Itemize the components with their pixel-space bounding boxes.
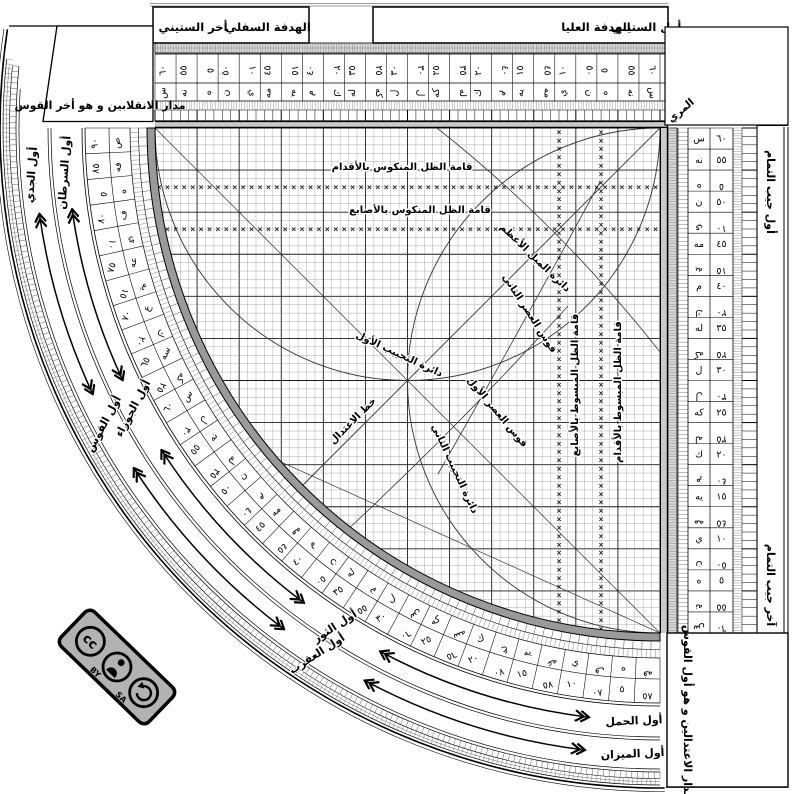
svg-text:٤٠: ٤٠ [499,65,510,75]
svg-text:٥٠: ٥٠ [219,482,234,497]
svg-text:×: × [556,221,562,229]
svg-text:×: × [417,225,423,233]
svg-text:×: × [556,364,562,372]
svg-text:×: × [556,423,562,431]
svg-text:ك: ك [475,632,486,645]
svg-text:×: × [291,183,297,191]
svg-text:٥٠: ٥٠ [313,573,328,588]
svg-text:×: × [282,225,288,233]
svg-text:×: × [598,297,604,305]
svg-text:×: × [392,183,398,191]
svg-text:×: × [198,225,204,233]
svg-text:×: × [556,356,562,364]
svg-text:×: × [249,183,255,191]
svg-text:ي: ي [695,534,702,545]
svg-text:م: م [257,492,269,504]
svg-text:×: × [223,225,229,233]
svg-text:×: × [598,229,604,237]
svg-text:×: × [598,305,604,313]
svg-text:×: × [598,128,604,136]
svg-text:×: × [366,225,372,233]
svg-text:مه: مه [694,518,704,529]
svg-text:×: × [417,183,423,191]
svg-text:له: له [695,323,703,334]
svg-text:×: × [598,617,604,625]
svg-text:×: × [598,600,604,608]
svg-text:×: × [265,183,271,191]
svg-text:٦٠: ٦٠ [399,627,413,641]
svg-text:عه: عه [127,256,140,269]
top-sine-ruler: ٦٠س٥٥نه٥ه٥٠ن١٠ي٤٥مه١٥يه٤٠م٢٠ك٣٥له٢٥كه٣٠ل… [155,43,668,128]
svg-text:٢٥: ٢٥ [716,349,726,360]
svg-text:٨٠: ٨٠ [96,213,108,225]
svg-text:×: × [556,591,562,599]
svg-text:٣٥: ٣٥ [457,65,468,75]
svg-text:×: × [535,183,541,191]
svg-text:١٥: ١٥ [117,287,130,300]
svg-text:×: × [350,183,356,191]
svg-text:×: × [442,183,448,191]
svg-text:١٥: ١٥ [515,65,526,75]
svg-text:×: × [598,263,604,271]
svg-text:×: × [274,183,280,191]
svg-text:٥٠: ٥٠ [221,65,232,75]
svg-text:م: م [306,538,318,550]
svg-text:×: × [598,171,604,179]
svg-text:×: × [409,183,415,191]
svg-text:×: × [598,280,604,288]
svg-text:ي: ي [557,89,568,96]
svg-text:×: × [316,225,322,233]
svg-text:٧٥: ٧٥ [105,261,118,274]
svg-text:×: × [556,524,562,532]
svg-text:له: له [695,433,703,444]
svg-text:×: × [556,532,562,540]
svg-text:×: × [556,246,562,254]
svg-text:٦٠: ٦٠ [647,65,658,75]
svg-text:عه: عه [546,656,559,669]
svg-text:×: × [577,183,583,191]
svg-text:×: × [173,183,179,191]
svg-text:×: × [598,398,604,406]
svg-text:٢٠: ٢٠ [716,449,726,460]
svg-text:×: × [556,448,562,456]
svg-text:٤٠: ٤٠ [305,65,316,75]
svg-text:مه: مه [269,504,284,519]
svg-text:×: × [333,183,339,191]
svg-text:١٠: ١٠ [716,223,726,234]
svg-text:×: × [598,532,604,540]
svg-text:×: × [598,246,604,254]
svg-text:×: × [526,183,532,191]
sight-vanes: أخر الستيني الهدفة السفلي الهدفة العليا … [150,4,681,44]
svg-text:ع: ع [141,304,153,313]
svg-text:٢٠: ٢٠ [331,65,342,75]
svg-text:ي: ي [127,235,139,244]
svg-text:×: × [568,183,574,191]
svg-text:٥٠: ٥٠ [716,560,726,571]
svg-text:٤٥: ٤٥ [275,541,290,556]
svg-text:٣٥: ٣٥ [207,466,222,481]
svg-text:٣٥: ٣٥ [331,584,346,599]
shadow-extended-digits-label: قامة الظل المبسوط بالأصابع [568,314,581,457]
svg-text:كه: كه [173,371,187,385]
svg-text:ن: ن [221,89,232,96]
svg-text:×: × [257,225,263,233]
svg-text:×: × [585,183,591,191]
svg-text:×: × [543,225,549,233]
svg-text:×: × [425,225,431,233]
svg-text:١٠: ١٠ [247,65,258,75]
svg-text:٥٥: ٥٥ [188,443,203,458]
svg-text:س: س [158,87,169,99]
svg-text:×: × [653,183,659,191]
svg-text:٣٠: ٣٠ [374,611,388,626]
svg-text:×: × [556,322,562,330]
shadow-reversed-digits-label: قامة الظل المنكوس بالأصابع [349,203,491,216]
svg-text:×: × [375,225,381,233]
svg-text:ن: ن [328,556,340,569]
svg-text:×: × [434,183,440,191]
solstice-orbit-label: مدار الانقلابين و هو أخر القوس [14,98,185,112]
svg-text:×: × [207,183,213,191]
svg-text:٤٠: ٤٠ [239,505,254,520]
svg-text:×: × [467,183,473,191]
svg-text:×: × [282,183,288,191]
svg-text:×: × [451,225,457,233]
svg-text:×: × [598,482,604,490]
svg-text:×: × [556,373,562,381]
svg-text:×: × [467,225,473,233]
svg-text:كه: كه [694,349,704,360]
svg-text:×: × [598,364,604,372]
svg-text:×: × [274,225,280,233]
svg-text:٦٥: ٦٥ [445,648,459,662]
svg-text:ك: ك [695,307,703,318]
svg-text:س: س [408,607,423,622]
svg-text:×: × [598,204,604,212]
svg-text:×: × [556,145,562,153]
svg-text:×: × [484,183,490,191]
svg-text:٤٠: ٤٠ [290,553,305,568]
svg-text:×: × [556,137,562,145]
svg-text:×: × [556,128,562,136]
svg-text:×: × [598,221,604,229]
svg-text:×: × [598,288,604,296]
svg-text:نه: نه [179,89,190,97]
svg-text:×: × [556,238,562,246]
svg-text:٢٥: ٢٥ [373,65,384,75]
svg-text:×: × [598,179,604,187]
svg-text:٨٥: ٨٥ [90,163,102,174]
svg-text:×: × [556,465,562,473]
svg-text:م: م [499,90,510,96]
svg-text:×: × [556,431,562,439]
svg-text:×: × [333,225,339,233]
right-cosine-column: س٦٠نه٥٥ه٥ن٥٠ي١٠مه٤٥يه١٥م٤٠ك٢٠له٣٥كه٢٥ل٣٠… [661,125,758,634]
svg-text:×: × [383,225,389,233]
svg-text:×: × [556,583,562,591]
svg-text:×: × [556,297,562,305]
svg-text:٧٠: ٧٠ [492,665,505,678]
svg-text:×: × [493,183,499,191]
svg-text:١٥: ١٥ [716,265,726,276]
svg-text:×: × [636,225,642,233]
svg-text:×: × [598,440,604,448]
svg-text:ي: ي [247,89,258,96]
svg-text:×: × [598,339,604,347]
svg-text:×: × [400,225,406,233]
svg-text:×: × [598,541,604,549]
svg-text:٦٥: ٦٥ [139,356,153,370]
svg-text:×: × [198,183,204,191]
svg-text:يه: يه [289,89,300,97]
svg-text:٤٥: ٤٥ [253,519,268,534]
svg-text:×: × [341,225,347,233]
svg-text:×: × [627,183,633,191]
svg-text:×: × [556,314,562,322]
svg-text:×: × [476,183,482,191]
svg-text:٥: ٥ [719,576,724,587]
svg-text:×: × [510,183,516,191]
svg-text:×: × [598,423,604,431]
svg-text:٣٥: ٣٥ [716,433,726,444]
svg-text:×: × [598,474,604,482]
svg-text:×: × [240,225,246,233]
svg-text:×: × [556,457,562,465]
svg-text:×: × [585,225,591,233]
svg-text:×: × [308,183,314,191]
svg-text:×: × [556,558,562,566]
svg-text:ه: ه [599,90,610,95]
svg-text:نه: نه [625,89,636,97]
svg-text:×: × [556,229,562,237]
svg-text:×: × [598,196,604,204]
svg-text:ل: ل [198,414,211,426]
svg-text:نه: نه [368,584,380,597]
svg-text:×: × [611,225,617,233]
svg-text:×: × [598,499,604,507]
svg-text:×: × [556,566,562,574]
svg-text:٨٥: ٨٥ [642,690,652,701]
svg-text:×: × [568,225,574,233]
svg-text:×: × [556,549,562,557]
svg-text:كه: كه [431,88,442,98]
svg-text:٥٥: ٥٥ [716,155,726,166]
svg-text:×: × [598,373,604,381]
svg-text:×: × [392,225,398,233]
svg-text:٢٥: ٢٥ [419,634,433,648]
svg-text:٩٠: ٩٠ [89,138,100,148]
svg-text:×: × [644,225,650,233]
svg-text:×: × [556,263,562,271]
svg-text:×: × [518,225,524,233]
svg-text:×: × [598,145,604,153]
svg-text:ه: ه [205,91,216,96]
svg-text:نه: نه [695,155,703,166]
svg-text:×: × [543,183,549,191]
svg-text:×: × [598,558,604,566]
svg-text:×: × [383,183,389,191]
svg-text:ن: ن [583,90,594,97]
svg-text:٤٥: ٤٥ [716,518,726,529]
svg-text:٢٠: ٢٠ [473,65,484,75]
svg-text:×: × [598,238,604,246]
svg-text:٣٠: ٣٠ [716,365,726,376]
svg-text:١٠: ١٠ [557,65,568,75]
svg-text:×: × [556,213,562,221]
svg-text:يه: يه [515,89,526,97]
svg-text:ك: ك [154,327,167,338]
svg-text:×: × [459,225,465,233]
svg-text:ي: ي [695,223,702,234]
svg-text:ع: ع [501,645,510,657]
svg-text:×: × [215,183,221,191]
svg-text:×: × [556,406,562,414]
svg-text:٣٠: ٣٠ [178,424,193,439]
svg-text:فه: فه [112,162,124,172]
svg-text:مه: مه [263,88,274,98]
sine-quadrant-page: ××××××××××××××××××××××××××××××××××××××××… [0,0,794,794]
svg-text:×: × [459,183,465,191]
svg-text:×: × [316,183,322,191]
svg-text:٥: ٥ [619,684,625,695]
svg-text:×: × [442,225,448,233]
svg-text:٤٥: ٤٥ [263,65,274,75]
svg-text:×: × [556,499,562,507]
svg-text:×: × [598,389,604,397]
svg-text:سه: سه [158,345,173,361]
svg-text:ل: ل [696,365,703,376]
svg-text:×: × [598,137,604,145]
svg-text:×: × [556,600,562,608]
svg-text:كه: كه [373,88,384,98]
cosine-end-label: آخر جيب التمام [764,544,778,626]
zodiac-label-inner-0: أول الحمل [605,712,663,728]
svg-text:×: × [653,225,659,233]
svg-text:×: × [636,183,642,191]
svg-text:يه: يه [695,265,703,276]
svg-text:×: × [598,406,604,414]
svg-text:س: س [693,134,705,145]
svg-text:×: × [598,465,604,473]
svg-text:١٠: ١٠ [716,534,726,545]
svg-text:×: × [434,225,440,233]
svg-text:×: × [366,183,372,191]
svg-text:فه: فه [643,668,653,679]
svg-text:×: × [232,225,238,233]
svg-text:×: × [598,591,604,599]
svg-text:×: × [164,183,170,191]
svg-text:ف: ف [118,209,130,221]
svg-text:ل: ل [386,592,398,605]
svg-text:×: × [556,187,562,195]
svg-text:×: × [358,183,364,191]
svg-text:ص: ص [111,137,122,149]
svg-text:×: × [190,225,196,233]
svg-text:س: س [647,87,658,99]
svg-text:ن: ن [696,197,703,208]
svg-text:٢٥: ٢٥ [716,407,726,418]
svg-text:٦٠: ٦٠ [161,400,176,414]
svg-text:كه: كه [694,407,704,418]
svg-text:٥٠: ٥٠ [583,65,594,75]
svg-text:×: × [173,225,179,233]
zodiac-label-outer-0: أول الميزان [600,745,664,762]
svg-text:×: × [556,171,562,179]
svg-text:×: × [598,154,604,162]
svg-text:٢٠: ٢٠ [467,653,480,667]
svg-text:٢٥: ٢٥ [154,380,168,394]
shadow-reversed-feet-label: قامة الظل المنكوس بالأقدام [332,160,473,173]
svg-text:×: × [556,330,562,338]
svg-text:٣٠: ٣٠ [415,65,426,75]
svg-text:٥٥: ٥٥ [355,602,370,617]
svg-text:م: م [305,90,316,96]
svg-text:×: × [451,183,457,191]
svg-text:ه: ه [696,181,701,192]
svg-text:×: × [501,183,507,191]
svg-text:٢٠: ٢٠ [133,335,147,349]
svg-text:×: × [598,583,604,591]
svg-text:ه: ه [621,662,627,673]
svg-text:له: له [347,89,358,97]
svg-text:×: × [556,305,562,313]
svg-text:×: × [598,330,604,338]
svg-text:ي: ي [570,656,579,668]
svg-text:×: × [291,225,297,233]
svg-text:×: × [207,225,213,233]
svg-text:×: × [598,187,604,195]
svg-text:×: × [619,225,625,233]
sixty-scale-end-label: أخر الستيني [158,19,227,34]
svg-text:×: × [409,225,415,233]
svg-text:×: × [249,225,255,233]
svg-text:×: × [518,183,524,191]
svg-text:نه: نه [207,431,220,444]
svg-text:٦٠: ٦٠ [716,623,726,634]
svg-text:×: × [598,457,604,465]
svg-text:×: × [556,608,562,616]
svg-text:×: × [215,225,221,233]
svg-text:يه: يه [138,282,151,293]
svg-text:×: × [611,183,617,191]
svg-text:×: × [556,204,562,212]
svg-text:٣٥: ٣٥ [347,65,358,75]
svg-text:×: × [598,162,604,170]
svg-text:×: × [644,183,650,191]
svg-text:×: × [598,566,604,574]
svg-text:×: × [324,183,330,191]
svg-text:٥٠: ٥٠ [716,197,726,208]
svg-text:ه: ه [120,189,131,195]
svg-text:×: × [598,608,604,616]
svg-text:ك: ك [473,89,484,97]
svg-text:×: × [308,225,314,233]
svg-text:ك: ك [695,449,703,460]
svg-text:سه: سه [452,627,468,642]
svg-text:×: × [598,415,604,423]
svg-text:٢٥: ٢٥ [431,65,442,75]
svg-text:×: × [535,225,541,233]
svg-text:×: × [299,183,305,191]
zodiac-label-inner-3: أول السرطان [54,135,73,210]
svg-text:مه: مه [290,524,305,539]
svg-text:٥: ٥ [719,181,724,192]
svg-text:×: × [556,389,562,397]
svg-text:ل: ل [389,89,400,96]
svg-text:×: × [598,448,604,456]
